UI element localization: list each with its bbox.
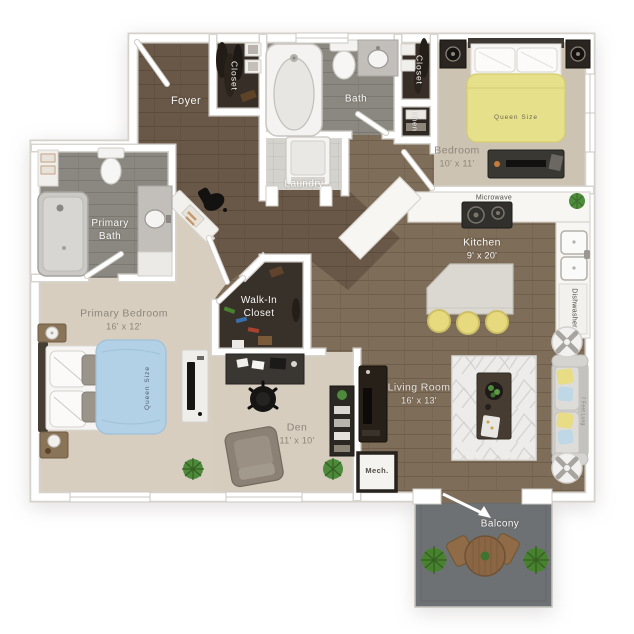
den-dims: 11' x 10' <box>280 435 315 447</box>
appliance-label-dishwasher: Dishwasher <box>569 288 578 328</box>
den-name: Den <box>280 421 315 435</box>
room-label-den: Den 11' x 10' <box>280 421 315 446</box>
room-label-kitchen: Kitchen 9' x 20' <box>463 236 501 261</box>
room-label-balcony: Balcony <box>481 518 519 531</box>
living-room-dims: 16' x 13' <box>388 395 451 407</box>
labels-layer: Foyer Closet Bath Linen Laundry Closet B… <box>0 0 634 634</box>
appliance-label-microwave: Microwave <box>476 193 512 202</box>
room-label-bath: Bath <box>345 93 367 106</box>
room-label-primary-bedroom: Primary Bedroom 16' x 12' <box>80 307 168 332</box>
floor-plan-image: Foyer Closet Bath Linen Laundry Closet B… <box>0 0 634 634</box>
room-label-living-room: Living Room 16' x 13' <box>388 381 451 406</box>
room-label-foyer-closet: Closet <box>228 61 239 91</box>
bedroom-dims: 10' x 11' <box>434 158 479 170</box>
room-label-bedroom-closet: Closet <box>413 55 424 85</box>
sofa-length-tag: 7 Feet Long <box>579 397 586 426</box>
room-label-laundry: Laundry <box>285 178 324 191</box>
room-label-walk-in-closet: Walk-In Closet <box>229 294 289 320</box>
room-label-bedroom: Bedroom 10' x 11' <box>434 144 479 169</box>
kitchen-name: Kitchen <box>463 236 501 250</box>
bedroom-bed-size-tag: Queen Size <box>494 114 538 122</box>
room-label-linen: Linen <box>409 110 418 131</box>
living-room-name: Living Room <box>388 381 451 395</box>
room-label-mech: Mech. <box>365 466 388 476</box>
primary-bedroom-name: Primary Bedroom <box>80 307 168 321</box>
bedroom-name: Bedroom <box>434 144 479 158</box>
primary-bedroom-dims: 16' x 12' <box>80 321 168 333</box>
kitchen-dims: 9' x 20' <box>463 250 501 262</box>
room-label-foyer: Foyer <box>171 94 201 108</box>
primary-bed-size-tag: Queen Size <box>144 366 152 410</box>
room-label-primary-bath: Primary Bath <box>80 217 140 243</box>
